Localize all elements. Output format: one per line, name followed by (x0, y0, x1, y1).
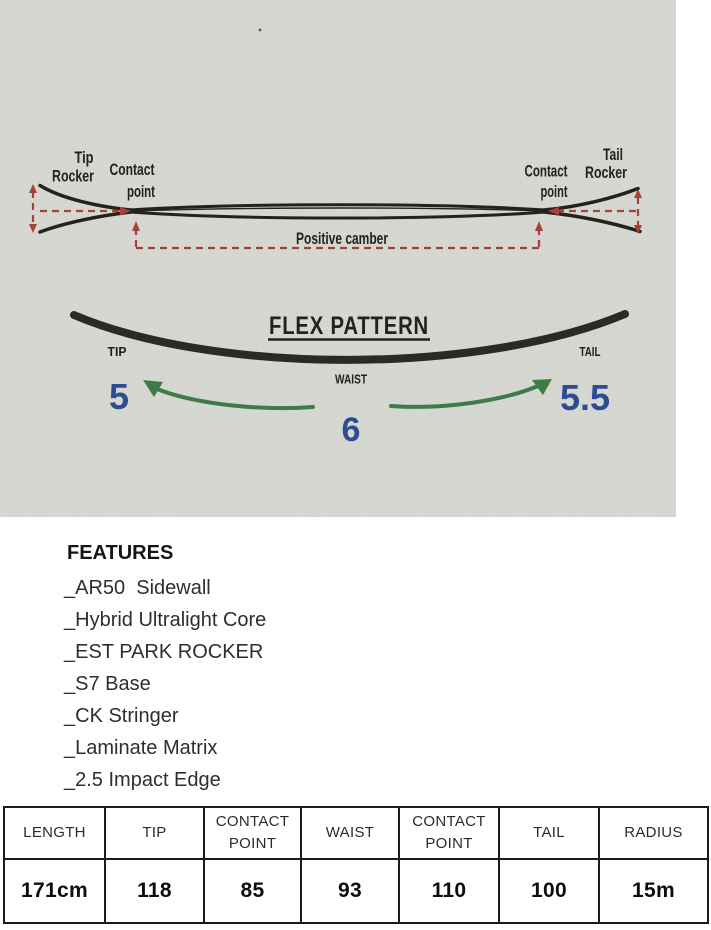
flex-tip-label: TIP (108, 345, 127, 359)
profile-photo: Tip Rocker Contact point Positive camber… (0, 0, 676, 517)
contact-point-right-label-line1: Contact (525, 162, 568, 181)
flex-tail-label: TAIL (580, 345, 601, 359)
positive-camber-label: Positive camber (296, 229, 388, 248)
flex-tip-value: 5 (109, 376, 129, 417)
spec-header-contact-point-front: CONTACT POINT (204, 807, 301, 859)
ski-spec-sheet: Tip Rocker Contact point Positive camber… (0, 0, 711, 930)
spec-value-tip: 118 (105, 859, 204, 923)
paper-texture (0, 0, 676, 517)
feature-item: _2.5 Impact Edge (64, 764, 266, 796)
contact-point-left-label-line2: point (127, 182, 155, 201)
spec-header-length: LENGTH (4, 807, 105, 859)
paper-speck (259, 29, 262, 32)
ski-profile-diagram: Tip Rocker Contact point Positive camber… (0, 0, 676, 517)
tip-rocker-label-line1: Tip (75, 148, 94, 167)
feature-item: _S7 Base (64, 668, 266, 700)
flex-tail-value: 5.5 (560, 377, 610, 418)
spec-value-radius: 15m (599, 859, 708, 923)
spec-table-header-row: LENGTH TIP CONTACT POINT WAIST CONTACT P… (4, 807, 708, 859)
spec-value-contact-point-rear: 110 (399, 859, 499, 923)
spec-table: LENGTH TIP CONTACT POINT WAIST CONTACT P… (3, 806, 709, 924)
spec-header-tip: TIP (105, 807, 204, 859)
flex-waist-label: WAIST (335, 373, 367, 387)
contact-point-left-label-line1: Contact (110, 160, 155, 179)
flex-waist-value: 6 (342, 411, 361, 449)
spec-value-contact-point-front: 85 (204, 859, 301, 923)
flex-pattern-title: FLEX PATTERN (269, 312, 429, 340)
features-list: _AR50 Sidewall _Hybrid Ultralight Core _… (64, 572, 266, 796)
spec-value-length: 171cm (4, 859, 105, 923)
spec-table-value-row: 171cm 118 85 93 110 100 15m (4, 859, 708, 923)
tail-rocker-label-line1: Tail (603, 145, 623, 164)
spec-header-tail: TAIL (499, 807, 599, 859)
spec-header-radius: RADIUS (599, 807, 708, 859)
spec-header-contact-point-rear: CONTACT POINT (399, 807, 499, 859)
feature-item: _EST PARK ROCKER (64, 636, 266, 668)
features-heading: FEATURES (67, 542, 266, 565)
feature-item: _AR50 Sidewall (64, 572, 266, 604)
contact-point-right-label-line2: point (541, 182, 568, 201)
feature-item: _CK Stringer (64, 700, 266, 732)
tail-rocker-label-line2: Rocker (585, 163, 627, 182)
feature-item: _Laminate Matrix (64, 732, 266, 764)
spec-value-waist: 93 (301, 859, 399, 923)
spec-header-waist: WAIST (301, 807, 399, 859)
feature-item: _Hybrid Ultralight Core (64, 604, 266, 636)
features-section: FEATURES _AR50 Sidewall _Hybrid Ultralig… (64, 542, 266, 796)
tip-rocker-label-line2: Rocker (52, 167, 94, 186)
spec-value-tail: 100 (499, 859, 599, 923)
